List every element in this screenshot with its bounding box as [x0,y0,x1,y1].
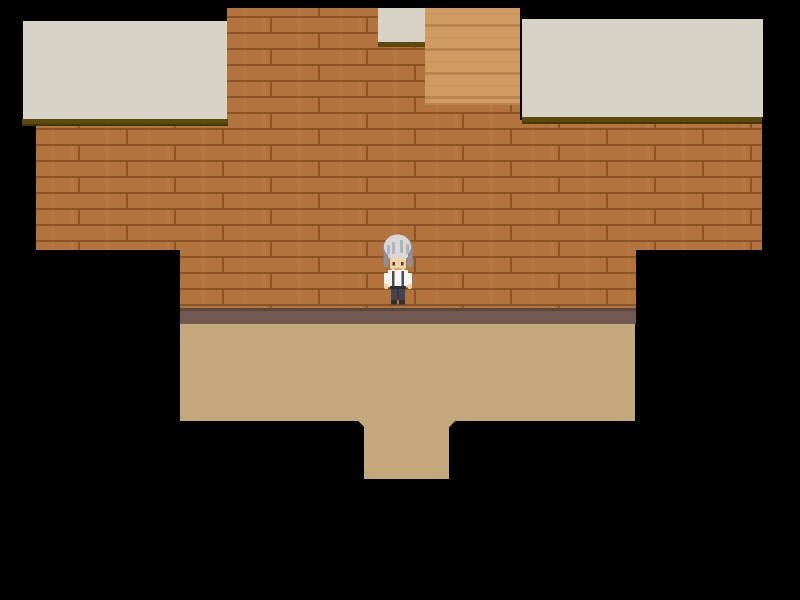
character-eye-left [393,262,396,266]
character-suspender-right [402,271,405,286]
roof-eave-top [378,42,425,47]
roof-panel-left [23,21,227,119]
character-shoe-right [399,300,405,305]
roof-panel-top [378,8,425,42]
staircase-bottom-edge [425,103,520,105]
character-suspender-left [392,271,395,286]
wall-base-trim-shadow [180,308,636,311]
character-hair-strand [392,242,395,254]
character-hair-strand [406,244,409,254]
roof-panel-right [522,19,763,117]
character-hair-strand [400,240,403,253]
character-shirt [388,270,408,287]
character-hand-left [384,284,388,289]
character-hair-sidelock [408,254,413,267]
game-scene [0,0,800,600]
character-hair-sidelock [384,254,389,267]
game-viewport[interactable] [0,0,800,600]
roof-eave-right-dark [522,122,762,124]
character-pants-seam [397,289,398,300]
character-shoe-left [391,300,397,305]
character-hair-strand [387,245,390,254]
staircase [425,8,520,105]
staircase-steps [425,8,520,105]
wall-base-trim [180,308,636,324]
roof-eave-left-dark [22,124,228,126]
character-belt [390,286,406,289]
character-hand-right [408,284,412,289]
character-eye-right [401,262,404,266]
